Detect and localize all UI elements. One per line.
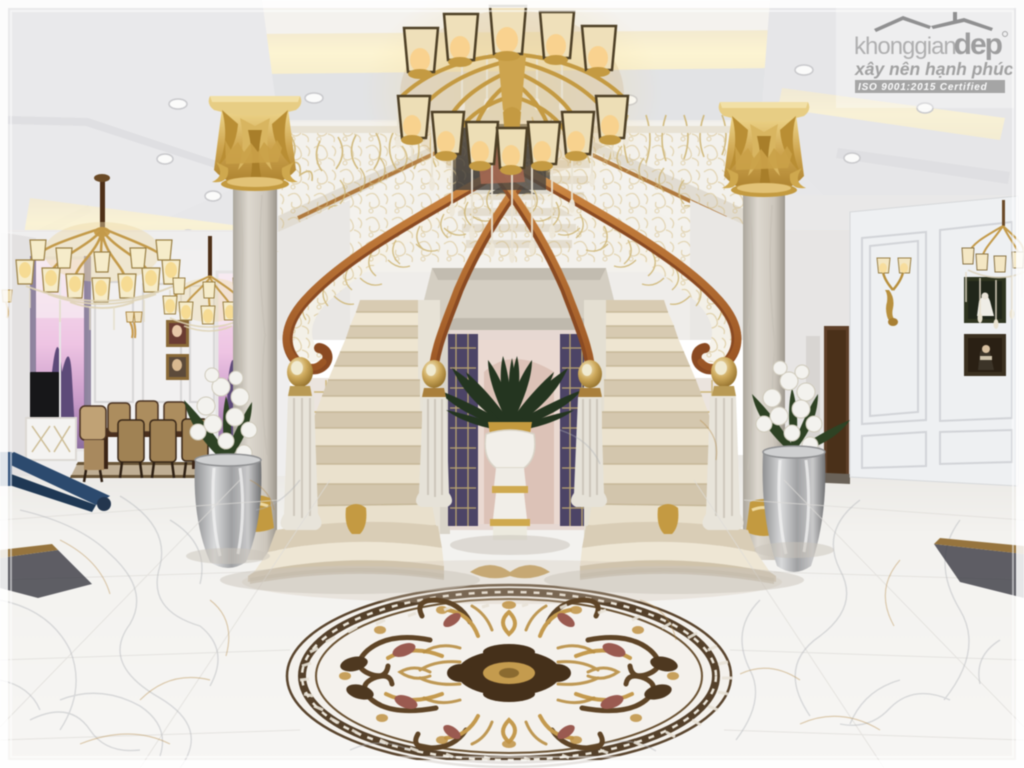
svg-text:xây nên hạnh phúc: xây nên hạnh phúc [854, 59, 1014, 79]
svg-text:dep: dep [954, 28, 1003, 61]
svg-text:ISO 9001:2015 Certified: ISO 9001:2015 Certified [858, 82, 988, 93]
svg-text:khonggian: khonggian [854, 33, 956, 60]
